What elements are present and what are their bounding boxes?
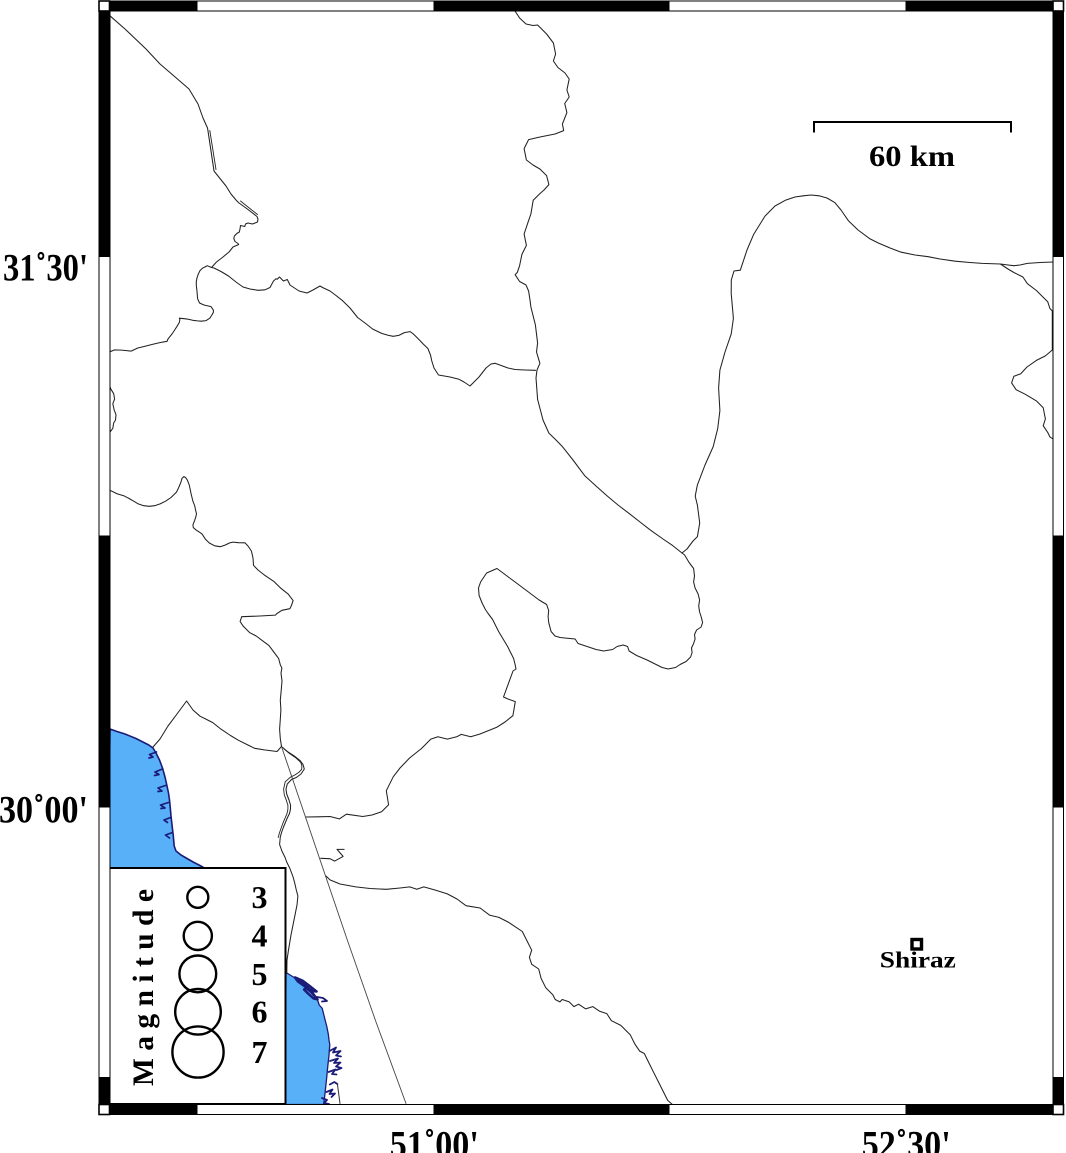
svg-text:6: 6 — [252, 994, 268, 1030]
svg-text:4: 4 — [252, 918, 268, 954]
svg-text:3: 3 — [252, 879, 268, 915]
svg-text:7: 7 — [252, 1034, 268, 1070]
svg-text:Shiraz: Shiraz — [880, 948, 956, 973]
svg-text:31˚30': 31˚30' — [3, 246, 88, 290]
svg-text:51˚00': 51˚00' — [390, 1123, 479, 1153]
svg-text:60 km: 60 km — [869, 140, 955, 173]
svg-text:30˚00': 30˚00' — [0, 788, 88, 832]
svg-text:52˚30': 52˚30' — [862, 1123, 951, 1153]
svg-text:5: 5 — [252, 956, 268, 992]
